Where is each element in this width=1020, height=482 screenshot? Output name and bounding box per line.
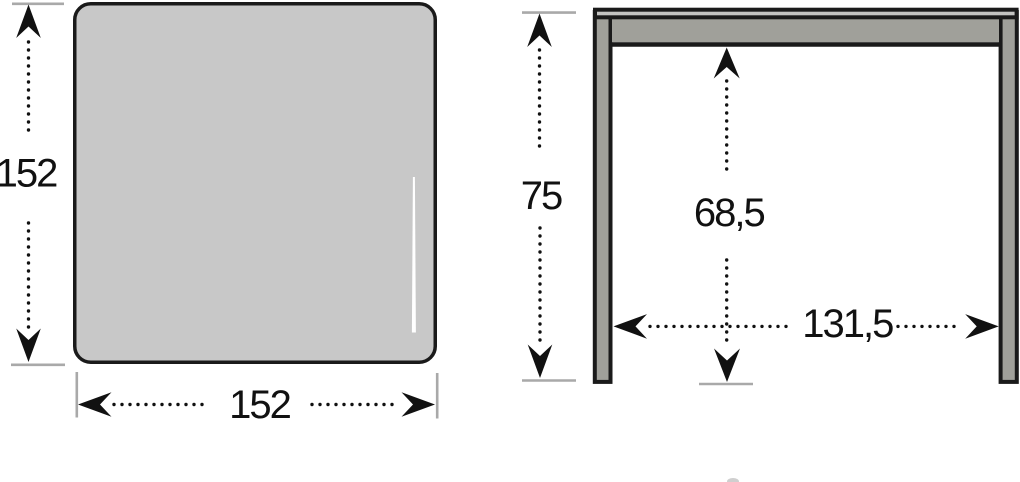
svg-text:68,5: 68,5 [694, 191, 765, 235]
svg-text:131,5: 131,5 [802, 302, 893, 346]
svg-text:75: 75 [521, 174, 562, 218]
svg-text:152: 152 [0, 152, 57, 196]
svg-text:152: 152 [229, 383, 290, 427]
